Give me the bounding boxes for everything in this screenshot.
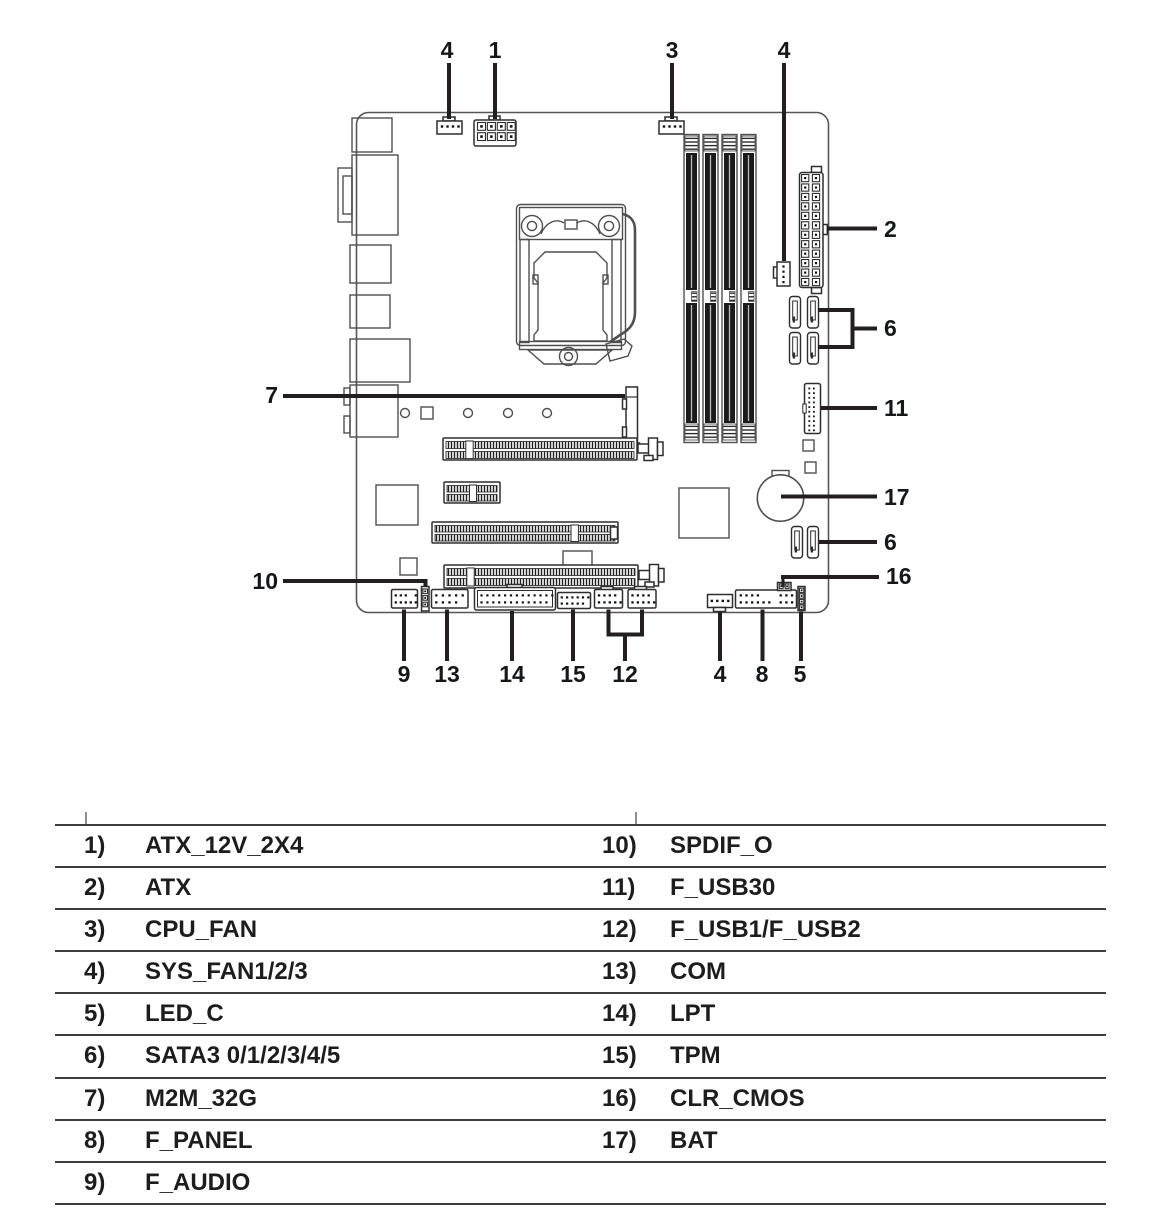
- leader-f-usb12: [607, 610, 645, 662]
- com-header: [432, 590, 469, 609]
- legend-row: 4) SYS_FAN1/2/3 13) COM: [55, 950, 1106, 992]
- spdif-o-header: [422, 587, 430, 612]
- atx-12v-2x4-connector: [474, 116, 516, 146]
- legend-row: 8) F_PANEL 17) BAT: [55, 1119, 1106, 1161]
- legend-label: F_PANEL: [145, 1121, 253, 1161]
- legend-number: 12): [602, 910, 637, 950]
- legend-number: 5): [84, 994, 105, 1034]
- legend-label: F_USB30: [670, 868, 775, 908]
- legend-label: F_AUDIO: [145, 1163, 250, 1203]
- callout-label: 4: [778, 37, 791, 63]
- callout-label: 4: [441, 37, 454, 63]
- legend-label: CPU_FAN: [145, 910, 257, 950]
- legend-label: SATA3 0/1/2/3/4/5: [145, 1036, 340, 1076]
- legend-number: 4): [84, 952, 105, 992]
- manual-page: 4 1 3 4 2 6 11 17 6 16 7 10 9 13 14 15 1…: [0, 0, 1159, 1230]
- lpt-header: [475, 585, 556, 611]
- legend-number: 13): [602, 952, 637, 992]
- legend-label: SPDIF_O: [670, 826, 773, 866]
- legend-label: M2M_32G: [145, 1079, 257, 1119]
- connector-legend-table: 1) ATX_12V_2X4 10) SPDIF_O 2) ATX 11) F_…: [55, 824, 1106, 1205]
- f-usb30-header: [803, 384, 821, 434]
- legend-row: 9) F_AUDIO: [55, 1161, 1106, 1203]
- callout-label: 8: [756, 661, 769, 687]
- f-audio-header: [392, 590, 418, 609]
- callout-label: 9: [398, 661, 411, 687]
- legend-label: CLR_CMOS: [670, 1079, 805, 1119]
- callout-label: 6: [884, 529, 897, 555]
- legend-label: BAT: [670, 1121, 718, 1161]
- callout-label: 6: [884, 315, 897, 341]
- callout-label: 1: [489, 37, 502, 63]
- legend-number: 9): [84, 1163, 105, 1203]
- legend-number: 17): [602, 1121, 637, 1161]
- callout-label: 16: [886, 563, 912, 589]
- legend-row: 5) LED_C 14) LPT: [55, 992, 1106, 1034]
- callout-label: 12: [612, 661, 638, 687]
- pcie-x16-slot-2: [432, 522, 618, 543]
- atx-24pin-connector: [800, 167, 828, 294]
- legend-row: 1) ATX_12V_2X4 10) SPDIF_O: [55, 824, 1106, 866]
- callout-label: 3: [666, 37, 679, 63]
- pcie-x16-slot-1: [443, 438, 663, 461]
- callout-label: 2: [884, 216, 897, 242]
- legend-number: 14): [602, 994, 637, 1034]
- legend-row: 2) ATX 11) F_USB30: [55, 866, 1106, 908]
- tpm-header: [558, 593, 591, 609]
- legend-number: 3): [84, 910, 105, 950]
- legend-number: 6): [84, 1036, 105, 1076]
- callout-label: 4: [714, 661, 727, 687]
- legend-row: 3) CPU_FAN 12) F_USB1/F_USB2: [55, 908, 1106, 950]
- motherboard-diagram: 4 1 3 4 2 6 11 17 6 16 7 10 9 13 14 15 1…: [0, 0, 1159, 770]
- table-column-tick: [85, 812, 87, 824]
- callout-label: 14: [499, 661, 525, 687]
- led-c-header: [798, 587, 805, 611]
- pcie-x16-slot-3: [444, 565, 664, 589]
- legend-label: ATX: [145, 868, 191, 908]
- legend-number: 7): [84, 1079, 105, 1119]
- legend-number: 11): [602, 868, 635, 908]
- callout-label: 11: [884, 395, 909, 421]
- legend-number: 10): [602, 826, 637, 866]
- legend-label: F_USB1/F_USB2: [670, 910, 861, 950]
- legend-row: 6) SATA3 0/1/2/3/4/5 15) TPM: [55, 1034, 1106, 1076]
- callout-label: 17: [884, 484, 910, 510]
- legend-label: LED_C: [145, 994, 224, 1034]
- table-column-tick: [635, 812, 637, 824]
- callout-label: 15: [560, 661, 586, 687]
- legend-row: 7) M2M_32G 16) CLR_CMOS: [55, 1077, 1106, 1119]
- legend-number: 8): [84, 1121, 105, 1161]
- legend-label: SYS_FAN1/2/3: [145, 952, 308, 992]
- legend-label: TPM: [670, 1036, 721, 1076]
- f-usb1-header: [595, 587, 623, 609]
- callout-label: 13: [434, 661, 460, 687]
- legend-label: ATX_12V_2X4: [145, 826, 303, 866]
- legend-number: 15): [602, 1036, 637, 1076]
- legend-number: 2): [84, 868, 105, 908]
- f-usb2-header: [628, 587, 656, 609]
- callout-label: 7: [265, 382, 278, 408]
- legend-number: 1): [84, 826, 105, 866]
- pcie-x1-slot: [444, 482, 500, 503]
- legend-label: LPT: [670, 994, 715, 1034]
- callout-label: 10: [252, 568, 278, 594]
- legend-number: 16): [602, 1079, 637, 1119]
- legend-label: COM: [670, 952, 726, 992]
- f-panel-header: [736, 590, 797, 608]
- callout-label: 5: [794, 661, 807, 687]
